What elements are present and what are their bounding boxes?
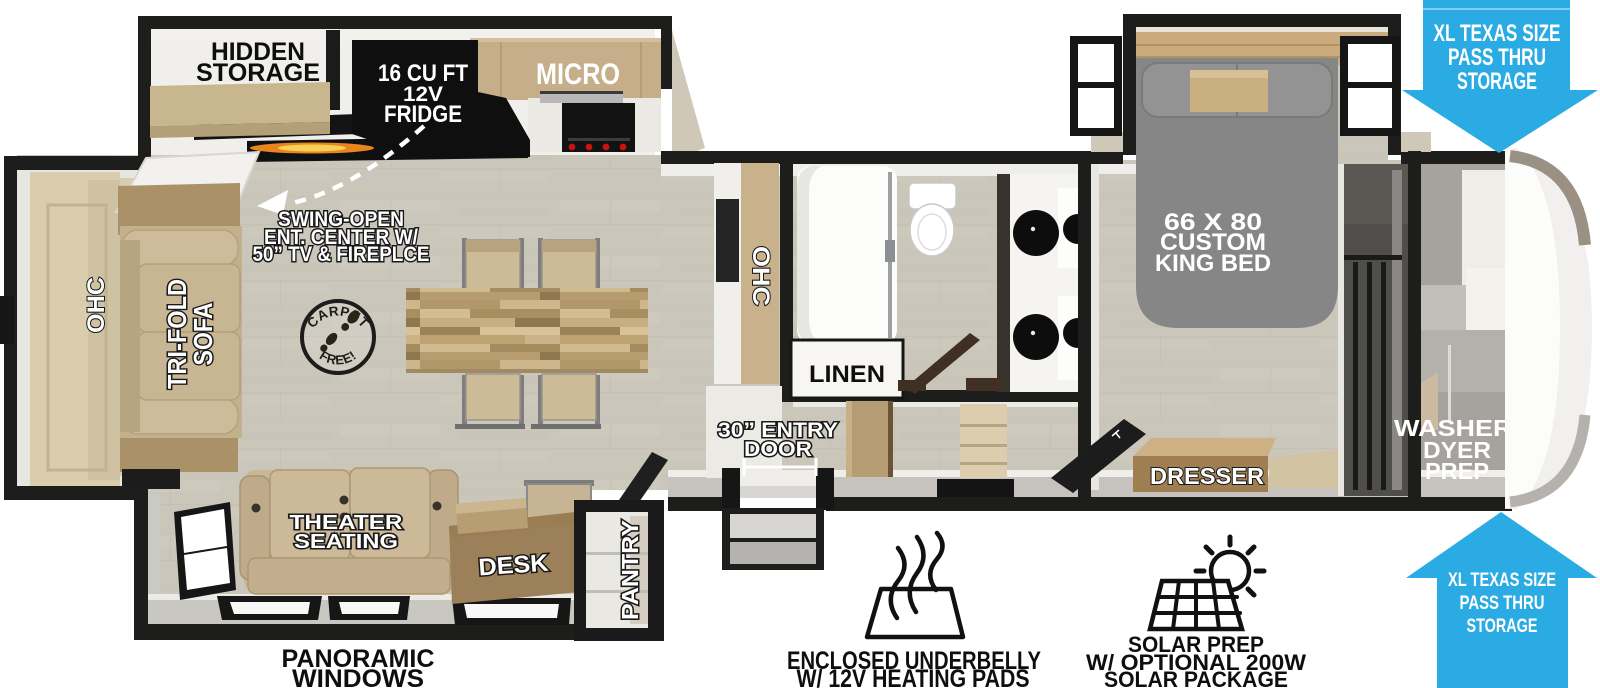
svg-text:W/ 12V HEATING PADS: W/ 12V HEATING PADS [797, 665, 1030, 688]
svg-text:XL TEXAS SIZE: XL TEXAS SIZE [1448, 570, 1556, 591]
svg-text:DRESSER: DRESSER [1150, 463, 1264, 489]
svg-text:FRIDGE: FRIDGE [384, 101, 462, 128]
svg-text:PANTRY: PANTRY [617, 520, 643, 620]
svg-text:MICRO: MICRO [536, 58, 620, 91]
svg-text:50” TV & FIREPLCE: 50” TV & FIREPLCE [253, 243, 430, 266]
svg-text:PREP: PREP [1425, 458, 1489, 484]
svg-text:SOFA: SOFA [188, 302, 218, 365]
svg-text:DOOR: DOOR [744, 438, 812, 461]
svg-text:OHC: OHC [83, 277, 110, 333]
svg-text:PASS THRU: PASS THRU [1448, 44, 1546, 71]
svg-text:LINEN: LINEN [809, 361, 885, 388]
svg-text:KING BED: KING BED [1155, 250, 1271, 277]
svg-text:DESK: DESK [478, 550, 550, 582]
svg-text:STORAGE: STORAGE [1467, 616, 1538, 637]
svg-text:SOLAR PACKAGE: SOLAR PACKAGE [1104, 667, 1288, 688]
svg-text:STORAGE: STORAGE [1457, 68, 1537, 95]
svg-text:STORAGE: STORAGE [196, 59, 320, 87]
svg-text:OHC: OHC [747, 246, 774, 306]
svg-text:SEATING: SEATING [294, 531, 398, 553]
svg-text:XL TEXAS SIZE: XL TEXAS SIZE [1434, 20, 1561, 47]
svg-text:PASS THRU: PASS THRU [1460, 593, 1545, 614]
svg-text:WINDOWS: WINDOWS [292, 665, 424, 688]
